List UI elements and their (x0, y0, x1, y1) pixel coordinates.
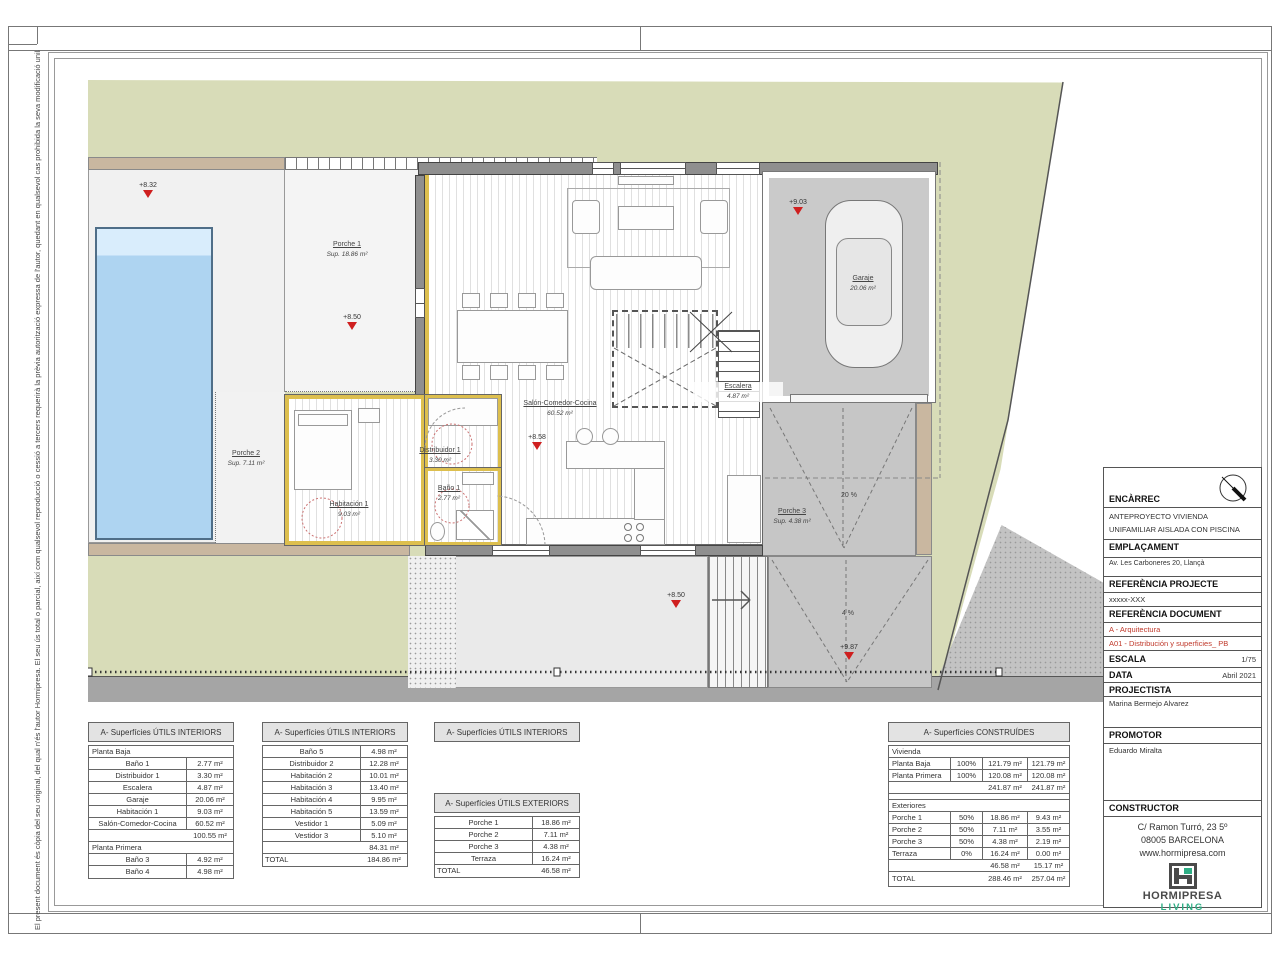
table-row: Porche 34.38 m² (435, 841, 579, 853)
table-row: Porche 250%7.11 m²3.55 m² (889, 824, 1069, 836)
slope-label-20: 20 % (824, 491, 874, 501)
sheet-corner-mark (37, 26, 38, 44)
table-row: Habitación 313.40 m² (263, 782, 407, 794)
elevation-triangle-icon (671, 600, 681, 608)
elevation-marker: +8.58 (514, 434, 560, 450)
emplacament-label: EMPLAÇAMENT (1104, 540, 1261, 558)
table-row: Porche 150%18.86 m²9.43 m² (889, 812, 1069, 824)
room-label-porche2: Porche 2Sup. 7.11 m² (201, 449, 291, 469)
slope-label-4: 4 % (823, 609, 873, 619)
table-subtotal-row: 46.58 m²15.17 m² (889, 860, 1069, 872)
table-row: Habitación 210.01 m² (263, 770, 407, 782)
table-row: Baño 54.98 m² (263, 746, 407, 758)
sheet-corner-mark2 (8, 44, 37, 45)
room-label-habitacion1: Habitación 19.03 m² (304, 500, 394, 520)
table-utils-interiors-pb: A- Superfícies ÚTILS INTERIORS Planta Ba… (88, 722, 234, 879)
table-row: Baño 34.92 m² (89, 854, 233, 866)
table-utils-interiors-p1: A- Superfícies ÚTILS INTERIORS Baño 54.9… (262, 722, 408, 867)
hormipresa-logo-icon (1169, 863, 1197, 889)
ref-projecte-label: REFERÈNCIA PROJECTE (1104, 577, 1261, 593)
table-row: Habitación 49.95 m² (263, 794, 407, 806)
elevation-marker: +9.87 (826, 644, 872, 660)
table-row: Distribuidor 212.28 m² (263, 758, 407, 770)
room-label-porche1: Porche 1Sup. 18.86 m² (302, 240, 392, 260)
table-row: Escalera4.87 m² (89, 782, 233, 794)
elevation-triangle-icon (793, 207, 803, 215)
room-label-porche3: Porche 3Sup. 4.38 m² (747, 507, 837, 527)
table-subtotal-row: 241.87 m²241.87 m² (889, 782, 1069, 794)
table-span-row: Planta Baja (89, 746, 233, 758)
title-block-encarrec-header: ENCÀRREC (1104, 468, 1261, 508)
table-row: Porche 27.11 m² (435, 829, 579, 841)
room-label-salon: Salón-Comedor-Cocina60.52 m² (505, 399, 615, 419)
elevation-marker: +8.50 (653, 592, 699, 608)
table-row: Planta Primera100%120.08 m²120.08 m² (889, 770, 1069, 782)
drawing-sheet: { "disclaimer": "El present document és … (0, 0, 1280, 960)
table-utils-interiors-header-only: A- Superfícies ÚTILS INTERIORS (434, 722, 580, 742)
room-label-escalera: Escalera4.87 m² (693, 382, 783, 402)
table-row: Porche 350%4.38 m²2.19 m² (889, 836, 1069, 848)
table-row: Porche 118.86 m² (435, 817, 579, 829)
projectista-label: PROJECTISTA (1104, 683, 1261, 697)
constructor-website: www.hormipresa.com (1109, 847, 1256, 860)
table-construides: A- Superfícies CONSTRUÍDES Vivienda Plan… (888, 722, 1070, 887)
table-row: Planta Baja100%121.79 m²121.79 m² (889, 758, 1069, 770)
plan-linework (88, 80, 1070, 700)
elevation-triangle-icon (143, 190, 153, 198)
title-block-project-title: ANTEPROYECTO VIVIENDA UNIFAMILIAR AISLAD… (1104, 508, 1261, 540)
encarrec-label: ENCÀRREC (1109, 494, 1160, 504)
room-label-bano1: Baño 12.77 m² (404, 484, 494, 504)
escala-row: ESCALA 1/75 (1104, 651, 1261, 668)
table-header: A- Superfícies ÚTILS EXTERIORS (434, 793, 580, 813)
table-header: A- Superfícies ÚTILS INTERIORS (434, 722, 580, 742)
elevation-marker: +8.32 (125, 182, 171, 198)
ref-document-line2: A01 - Distribución y superficies_ PB (1104, 637, 1261, 651)
copyright-disclaimer: El present document és còpia del seu ori… (33, 50, 42, 930)
table-row: Terraza16.24 m² (435, 853, 579, 865)
data-label: DATA (1109, 670, 1133, 680)
table-header: A- Superfícies CONSTRUÍDES (888, 722, 1070, 742)
elevation-triangle-icon (347, 322, 357, 330)
table-row: Salón-Comedor-Cocina60.52 m² (89, 818, 233, 830)
table-row: Garaje20.06 m² (89, 794, 233, 806)
table-total-row: TOTAL184.86 m² (263, 854, 407, 866)
sheet-top-band-line (8, 50, 1272, 51)
table-subtotal-row: 100.55 m² (89, 830, 233, 842)
project-title-line1: ANTEPROYECTO VIVIENDA (1109, 510, 1256, 523)
brand-name: HORMIPRESA (1109, 890, 1256, 902)
table-span-row: Planta Primera (89, 842, 233, 854)
data-row: DATA Abril 2021 (1104, 668, 1261, 683)
table-row: Habitación 19.03 m² (89, 806, 233, 818)
promotor-label: PROMOTOR (1104, 728, 1261, 744)
ref-document-label: REFERÈNCIA DOCUMENT (1104, 607, 1261, 623)
table-row: Vestidor 15.09 m² (263, 818, 407, 830)
ref-projecte-value: xxxxx-XXX (1104, 593, 1261, 607)
elevation-marker: +8.50 (329, 314, 375, 330)
table-row: Vestidor 35.10 m² (263, 830, 407, 842)
promotor-value: Eduardo Miralta (1104, 744, 1261, 801)
constructor-address1: C/ Ramon Turró, 23 5º (1109, 821, 1256, 834)
sheet-bottom-divider (640, 913, 641, 934)
brand-sub: LIVING (1109, 902, 1256, 913)
escala-value: 1/75 (1241, 655, 1256, 664)
table-row: Habitación 513.59 m² (263, 806, 407, 818)
constructor-address2: 08005 BARCELONA (1109, 834, 1256, 847)
room-label-garaje: Garaje20.06 m² (818, 274, 908, 294)
north-arrow-icon (1209, 470, 1255, 508)
sheet-top-divider (640, 26, 641, 50)
data-value: Abril 2021 (1222, 671, 1256, 680)
constructor-info: C/ Ramon Turró, 23 5º 08005 BARCELONA ww… (1104, 817, 1261, 906)
table-header: A- Superfícies ÚTILS INTERIORS (88, 722, 234, 742)
projectista-value: Marina Bermejo Alvarez (1104, 697, 1261, 728)
table-row: Distribuidor 13.30 m² (89, 770, 233, 782)
elevation-triangle-icon (844, 652, 854, 660)
table-total-row: TOTAL288.46 m²257.04 m² (889, 872, 1069, 886)
ref-document-line1: A - Arquitectura (1104, 623, 1261, 637)
escala-label: ESCALA (1109, 654, 1146, 664)
table-header: A- Superfícies ÚTILS INTERIORS (262, 722, 408, 742)
table-total-row: TOTAL46.58 m² (435, 865, 579, 877)
elevation-marker: +9.03 (775, 199, 821, 215)
table-row: Terraza0%16.24 m²0.00 m² (889, 848, 1069, 860)
table-span-row: Vivienda (889, 746, 1069, 758)
table-row: Baño 12.77 m² (89, 758, 233, 770)
table-utils-exteriors: A- Superfícies ÚTILS EXTERIORS Porche 11… (434, 793, 580, 878)
constructor-label: CONSTRUCTOR (1104, 801, 1261, 817)
table-subtotal-row: 84.31 m² (263, 842, 407, 854)
title-block: ENCÀRREC ANTEPROYECTO VIVIENDA UNIFAMILI… (1103, 467, 1262, 908)
emplacament-value: Av. Les Carboneres 20, Llançà (1104, 558, 1261, 577)
room-label-distribuidor1: Distribuidor 13.30 m² (395, 446, 485, 466)
table-row: Baño 44.98 m² (89, 866, 233, 878)
elevation-triangle-icon (532, 442, 542, 450)
project-title-line2: UNIFAMILIAR AISLADA CON PISCINA (1109, 523, 1256, 536)
table-span-row: Exteriores (889, 800, 1069, 812)
